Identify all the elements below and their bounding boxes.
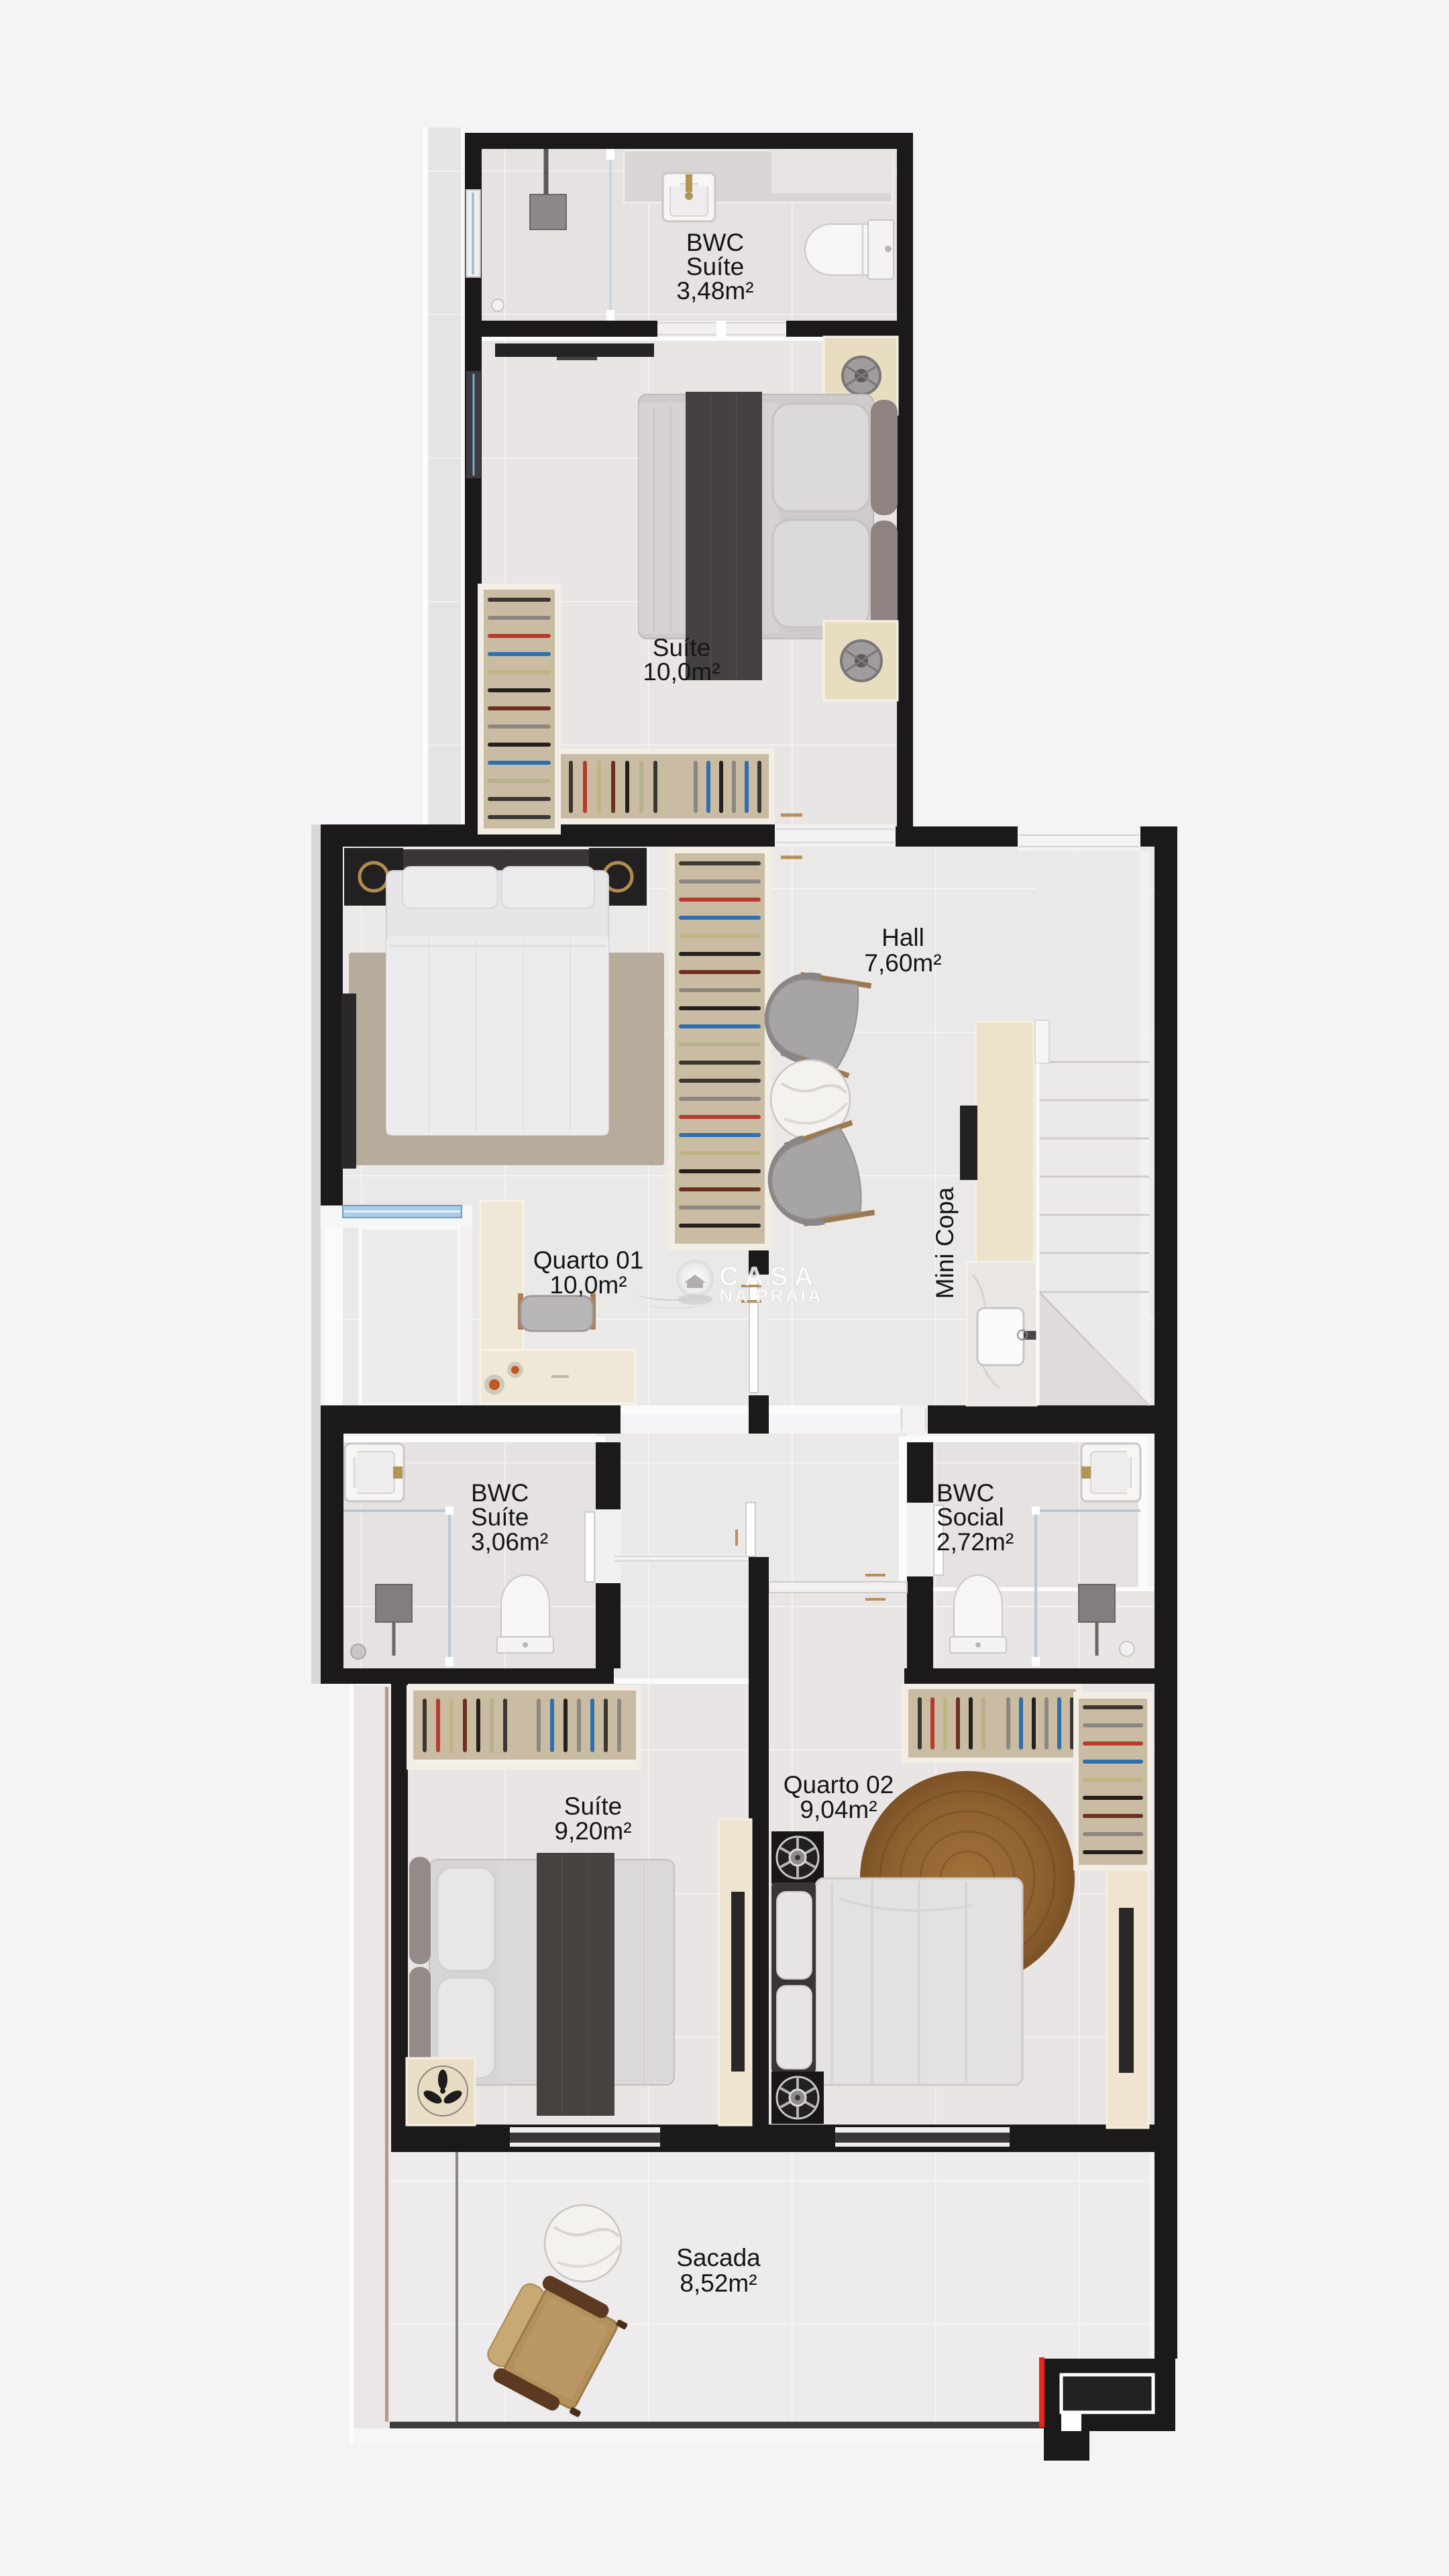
svg-text:3,06m²: 3,06m² — [471, 1528, 548, 1556]
svg-text:BWC: BWC — [686, 229, 744, 256]
svg-text:2,72m²: 2,72m² — [936, 1528, 1014, 1556]
svg-text:NA PRAIA: NA PRAIA — [719, 1285, 822, 1306]
svg-text:Social: Social — [936, 1503, 1004, 1531]
svg-text:BWC: BWC — [936, 1479, 994, 1507]
svg-text:8,52m²: 8,52m² — [680, 2269, 757, 2297]
svg-text:Suíte: Suíte — [471, 1503, 529, 1531]
svg-text:Quarto 01: Quarto 01 — [533, 1246, 644, 1274]
svg-text:3,48m²: 3,48m² — [676, 277, 753, 305]
svg-text:Suíte: Suíte — [564, 1792, 622, 1820]
svg-text:Hall: Hall — [881, 924, 924, 951]
svg-text:Suíte: Suíte — [686, 253, 744, 280]
svg-text:7,60m²: 7,60m² — [864, 949, 941, 977]
svg-text:9,04m²: 9,04m² — [800, 1796, 877, 1823]
svg-text:IMÓVEIS: IMÓVEIS — [782, 1304, 830, 1315]
svg-text:10,0m²: 10,0m² — [643, 658, 720, 686]
svg-text:Quarto 02: Quarto 02 — [784, 1771, 894, 1799]
svg-text:10,0m²: 10,0m² — [549, 1271, 627, 1299]
svg-text:9,20m²: 9,20m² — [554, 1817, 631, 1845]
svg-text:Mini Copa: Mini Copa — [931, 1187, 959, 1299]
svg-text:Sacada: Sacada — [676, 2244, 761, 2271]
svg-text:BWC: BWC — [471, 1479, 529, 1507]
svg-text:Suíte: Suíte — [653, 634, 710, 661]
